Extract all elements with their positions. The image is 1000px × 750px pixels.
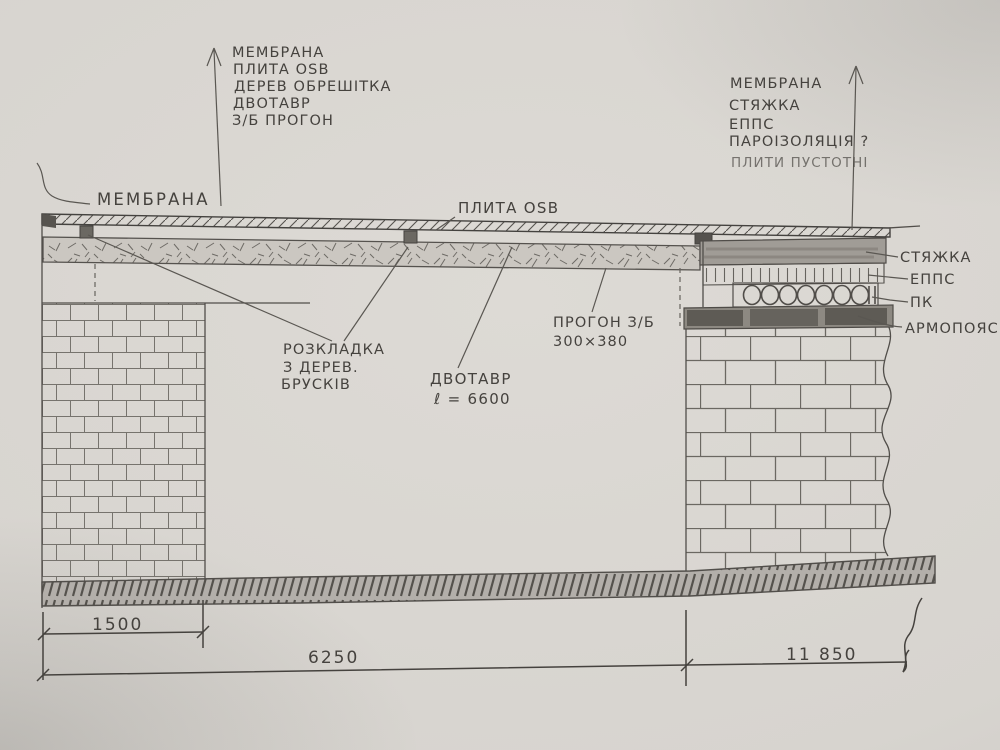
- legend-right-line: ПЛИТИ ПУСТОТНІ: [731, 155, 869, 171]
- epps-label: ЕППС: [910, 272, 956, 288]
- ibeam-label: ДВОТАВР ℓ = 6600: [430, 370, 512, 408]
- legend-right-list: МЕМБРАНА СТЯЖКА ЕППС ПАРОІЗОЛЯЦІЯ ? ПЛИТ…: [729, 76, 869, 171]
- armo-belt-label: АРМОПОЯС: [905, 321, 999, 337]
- photographed-sketch-paper: МЕМБРАНА ПЛИТА OSB ДЕРЕВ ОБРЕШІТКА ДВОТА…: [0, 0, 1000, 750]
- dim-right-span: 11 850: [786, 645, 857, 665]
- legend-right-line: ЕППС: [729, 117, 775, 133]
- battens-label-line1: РОЗКЛАДКА: [283, 342, 385, 358]
- legend-left-line: ПЛИТА OSB: [233, 62, 330, 78]
- legend-left-arrow: [207, 48, 221, 206]
- osb-membrane-plate: [42, 214, 920, 237]
- osb-plate-label: ПЛИТА OSB: [458, 199, 559, 217]
- membrane-label: МЕМБРАНА: [97, 190, 210, 209]
- layer-labels-right: СТЯЖКА ЕППС ПК АРМОПОЯС: [900, 250, 999, 337]
- legend-left-list: МЕМБРАНА ПЛИТА OSB ДЕРЕВ ОБРЕШІТКА ДВОТА…: [232, 45, 392, 129]
- dim-span: 6250: [308, 648, 359, 668]
- dimension-lines: [37, 598, 922, 686]
- ibeam-label-line2: ℓ = 6600: [433, 390, 511, 408]
- epps-insulation-layer: [703, 263, 884, 285]
- left-brick-wall: [42, 303, 310, 583]
- right-brick-wall: [686, 325, 896, 575]
- purlin-label: ПРОГОН З/Б 300×380: [553, 315, 655, 350]
- legend-left-line: ДВОТАВР: [233, 96, 311, 112]
- plate-left-end-cap: [42, 214, 56, 228]
- hollow-slab-label: ПК: [910, 295, 933, 311]
- membrane-leader: [37, 163, 90, 204]
- construction-section-drawing: МЕМБРАНА ПЛИТА OSB ДЕРЕВ ОБРЕШІТКА ДВОТА…: [0, 0, 1000, 750]
- wood-lath-layer: [43, 237, 700, 270]
- dim-left-wall: 1500: [92, 615, 143, 635]
- battens-label-line2: З ДЕРЕВ.: [283, 360, 359, 376]
- ibeam-label-line1: ДВОТАВР: [430, 370, 512, 388]
- battens-label: РОЗКЛАДКА З ДЕРЕВ. БРУСКІВ: [281, 342, 385, 393]
- legend-left-line: МЕМБРАНА: [232, 45, 324, 61]
- purlin-label-line1: ПРОГОН З/Б: [553, 315, 655, 331]
- legend-right-line: СТЯЖКА: [729, 98, 801, 114]
- battens-label-line3: БРУСКІВ: [281, 377, 351, 393]
- legend-right-line: ПАРОІЗОЛЯЦІЯ ?: [729, 134, 869, 150]
- screed-label: СТЯЖКА: [900, 250, 972, 266]
- legend-left-line: ДЕРЕВ ОБРЕШІТКА: [234, 79, 392, 95]
- legend-left-line: З/Б ПРОГОН: [232, 113, 334, 129]
- dimension-texts: 1500 6250 11 850: [92, 615, 857, 668]
- purlin-label-line2: 300×380: [553, 334, 628, 350]
- purlin-leader: [592, 268, 606, 312]
- legend-right-line: МЕМБРАНА: [730, 76, 822, 92]
- screed-layer: [700, 238, 886, 265]
